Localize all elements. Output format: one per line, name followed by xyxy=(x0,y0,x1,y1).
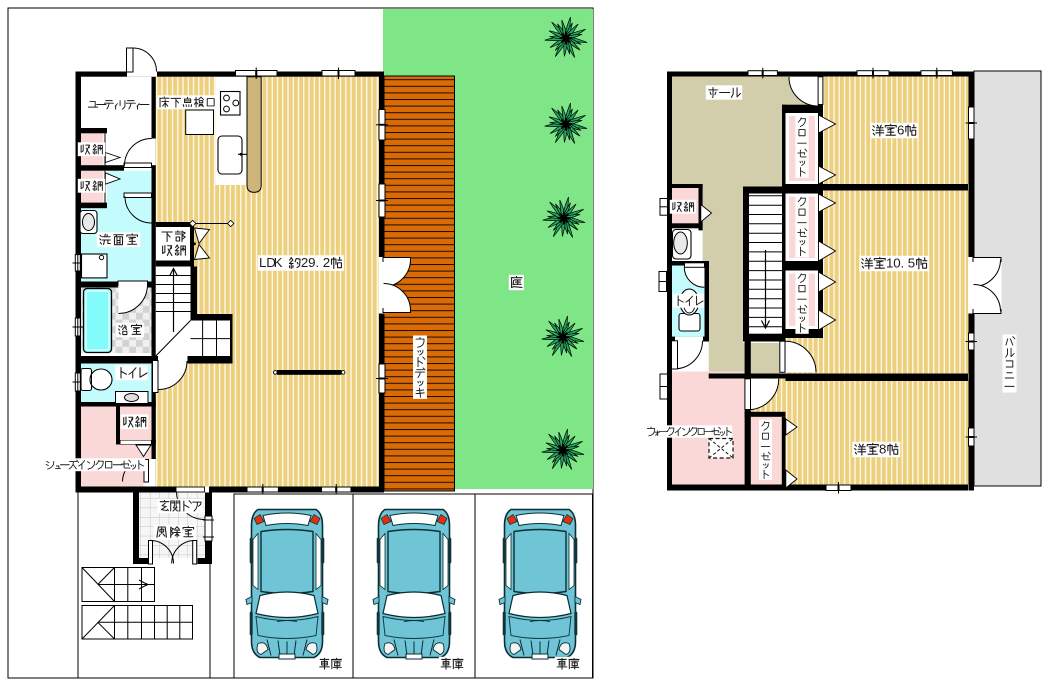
svg-text:.: . xyxy=(901,256,905,271)
svg-text:6: 6 xyxy=(897,123,904,138)
svg-text:9: 9 xyxy=(308,255,315,270)
svg-text:2: 2 xyxy=(323,255,330,270)
svg-text:.: . xyxy=(315,255,319,270)
svg-text:L: L xyxy=(259,255,266,270)
svg-text:1: 1 xyxy=(886,256,893,271)
svg-text:5: 5 xyxy=(908,256,915,271)
svg-text:K: K xyxy=(274,255,283,270)
svg-text:8: 8 xyxy=(879,442,886,457)
